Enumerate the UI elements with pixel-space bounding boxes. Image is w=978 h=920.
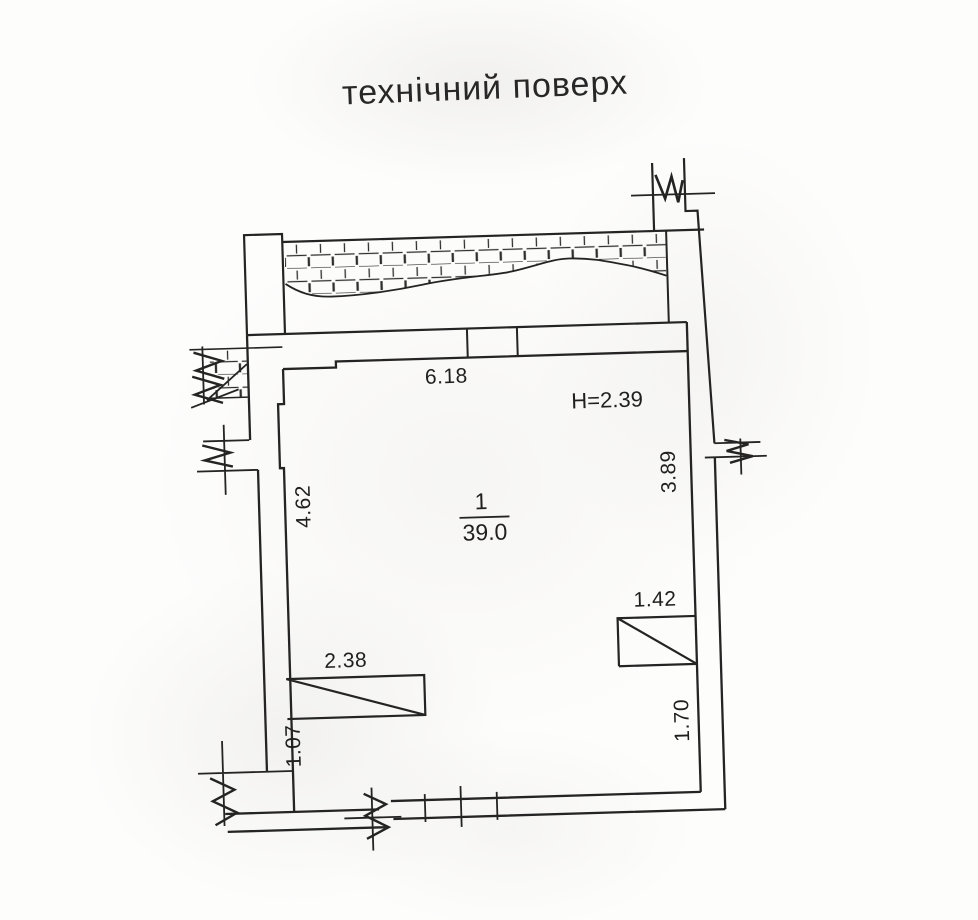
hatched-band bbox=[244, 222, 707, 336]
stub-hatch-fill bbox=[209, 348, 247, 398]
dim-shaft-left-width: 2.38 bbox=[324, 649, 368, 673]
plan-title: технічний поверх bbox=[341, 64, 628, 113]
shaft-outline bbox=[286, 675, 425, 719]
dim-top-width: 6.18 bbox=[425, 365, 469, 389]
room-area: 39.0 bbox=[462, 518, 508, 545]
vent-shaft-right bbox=[618, 616, 697, 666]
room-bottom-inner-wall bbox=[225, 792, 701, 814]
break-mark-left-upper bbox=[189, 344, 284, 408]
room-number: 1 bbox=[474, 488, 488, 514]
band-left-stub bbox=[244, 234, 285, 335]
dim-left-lower: 1.07 bbox=[282, 724, 306, 768]
band-room-connector bbox=[467, 327, 518, 357]
left-outer-wall-lower bbox=[258, 470, 267, 772]
vent-shaft-left bbox=[286, 675, 425, 719]
dim-shaft-right-width: 1.42 bbox=[633, 587, 677, 611]
break-cross-lines bbox=[704, 438, 767, 476]
room-top-wall bbox=[283, 351, 688, 369]
room-label: 1 39.0 bbox=[459, 487, 511, 545]
dim-right-lower: 1.70 bbox=[670, 699, 694, 743]
dim-left-upper: 4.62 bbox=[291, 485, 315, 529]
break-zigzag-icon bbox=[202, 445, 233, 468]
wall-line bbox=[652, 163, 654, 231]
break-cross-line bbox=[631, 193, 715, 195]
bottom-wall-joint-ticks bbox=[424, 785, 497, 828]
break-mark-right-middle bbox=[704, 438, 767, 476]
floor-plan-drawing: технічний поверх bbox=[0, 0, 978, 920]
dim-right-upper: 3.89 bbox=[657, 450, 681, 494]
break-zigzag-icon bbox=[655, 174, 683, 203]
brick-hatch-fill bbox=[284, 232, 666, 299]
connector-lines bbox=[467, 327, 518, 357]
band-right-edge bbox=[666, 231, 669, 323]
ceiling-height-label: H=2.39 bbox=[571, 386, 643, 413]
shaft-outline bbox=[618, 616, 697, 666]
break-mark-top-right bbox=[630, 157, 722, 445]
right-outer-wall-lower bbox=[715, 457, 725, 809]
break-zigzag-icon bbox=[364, 793, 389, 839]
